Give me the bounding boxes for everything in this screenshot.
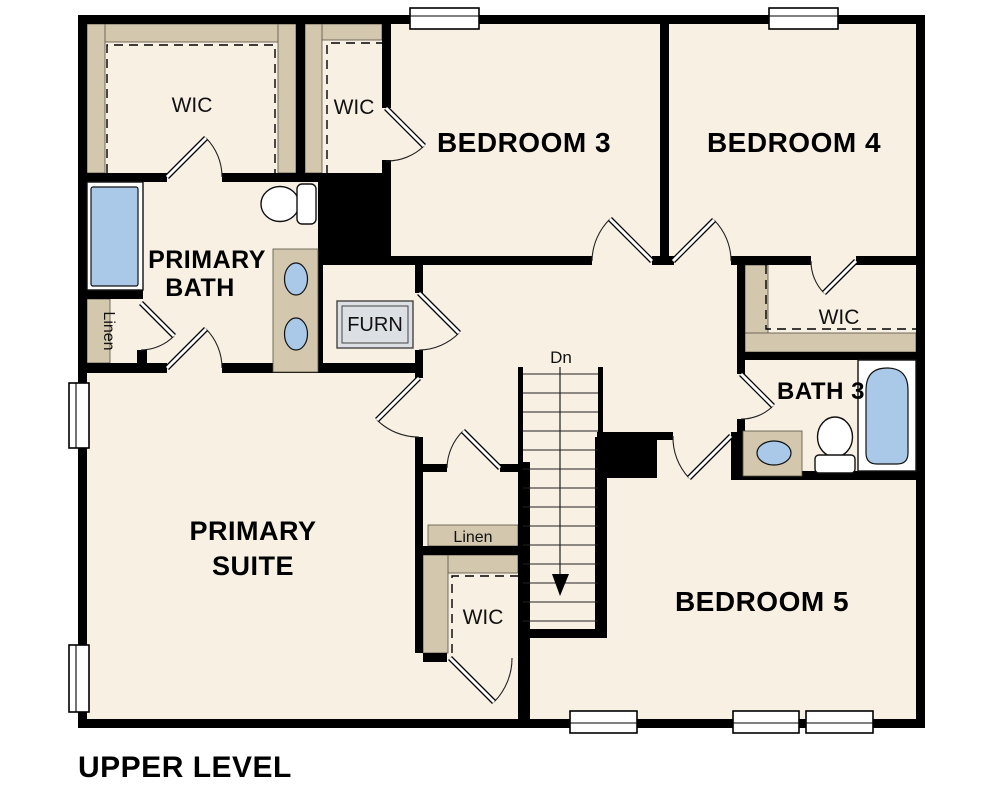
wall-segment (382, 256, 592, 265)
label-bedroom-5: BEDROOM 5 (675, 586, 849, 617)
closet-shelf (87, 24, 105, 173)
label-bedroom-3: BEDROOM 3 (437, 127, 611, 158)
label-wic-right: WIC (819, 306, 860, 329)
stair-rail (518, 367, 523, 468)
window (410, 8, 479, 29)
toilet-tank (297, 184, 316, 224)
wall-segment (652, 256, 674, 265)
wall-segment (737, 352, 916, 360)
wall-segment (500, 464, 518, 472)
toilet-tank (815, 455, 855, 473)
wall-segment (916, 15, 925, 728)
wall-segment (423, 653, 447, 662)
stair-rail (598, 367, 603, 437)
wall-segment (222, 363, 415, 373)
page-title: UPPER LEVEL (78, 751, 292, 784)
wall-segment (382, 24, 391, 108)
floor-plan-canvas: WIC WIC BEDROOM 3 BEDROOM 4 PRIMARY BATH… (0, 0, 1000, 800)
closet-shelf (423, 555, 448, 653)
wall-segment (423, 464, 447, 472)
toilet-fixture (818, 417, 853, 457)
closet-shelf (305, 24, 322, 173)
wall-segment (856, 256, 916, 265)
wall-segment (518, 462, 530, 719)
label-stairs-dn: Dn (550, 348, 572, 367)
window (69, 383, 89, 448)
wall-segment (737, 256, 745, 352)
wall-segment (737, 360, 745, 374)
window (733, 711, 799, 733)
label-linen-left: Linen (100, 311, 117, 350)
label-wic-top-left: WIC (172, 94, 213, 117)
label-primary-suite-line1: PRIMARY (189, 516, 316, 546)
wall-segment (415, 350, 423, 363)
window (806, 711, 873, 733)
label-bedroom-4: BEDROOM 4 (707, 127, 881, 158)
wall-segment (87, 173, 167, 182)
wall-segment (415, 437, 423, 653)
shower-pan (91, 187, 138, 286)
sink-fixture (757, 441, 791, 465)
label-bath-3: BATH 3 (777, 378, 865, 405)
toilet-fixture (261, 187, 299, 222)
label-linen-center: Linen (453, 529, 492, 546)
window (570, 711, 637, 733)
sink-fixture (285, 263, 308, 295)
sink-fixture (285, 318, 308, 350)
wall-segment (222, 173, 305, 182)
wall-segment (657, 432, 673, 440)
label-primary-bath-line2: BATH (165, 274, 235, 302)
closet-shelf (278, 24, 296, 173)
wall-segment (415, 265, 423, 293)
label-wic-top-mid: WIC (334, 96, 375, 119)
wall-segment (137, 350, 147, 363)
label-primary-suite-line2: SUITE (212, 551, 294, 581)
label-furnace: FURN (347, 314, 403, 336)
wall-segment (87, 290, 143, 299)
wall-segment (415, 363, 423, 378)
closet-shelf (87, 24, 296, 42)
wall-segment (305, 173, 382, 182)
wall-segment (87, 363, 167, 373)
label-primary-bath-line1: PRIMARY (148, 246, 266, 274)
window (769, 8, 838, 29)
floor-plan-page: WIC WIC BEDROOM 3 BEDROOM 4 PRIMARY BATH… (0, 0, 1000, 800)
wall-segment (595, 437, 607, 637)
wall-segment (78, 15, 87, 728)
closet-shelf (745, 333, 916, 352)
wall-segment (745, 256, 811, 265)
wall-segment (660, 24, 669, 256)
window (69, 645, 89, 712)
wall-segment (296, 24, 305, 182)
wall-segment (423, 546, 518, 555)
bathtub-fixture (866, 368, 908, 464)
wall-segment (518, 629, 607, 638)
label-wic-lower: WIC (463, 606, 504, 629)
chase-wall (318, 182, 385, 265)
